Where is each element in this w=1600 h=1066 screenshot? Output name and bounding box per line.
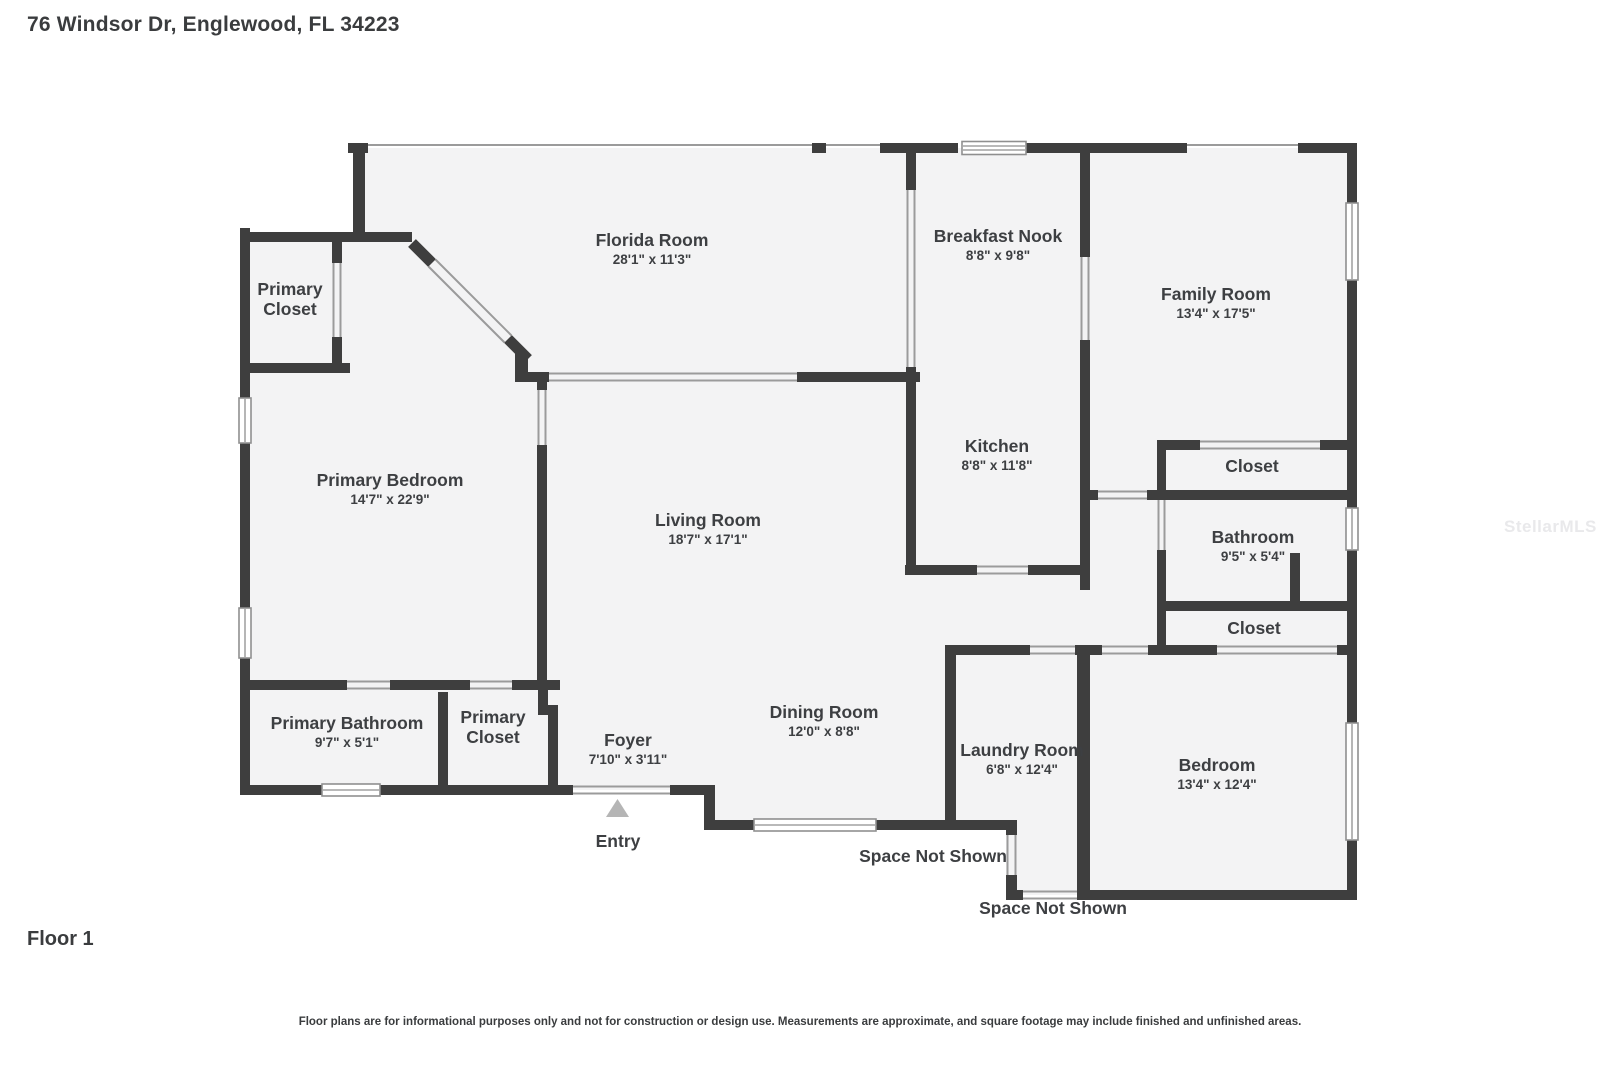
window bbox=[962, 142, 1026, 155]
room-label-living-room: Living Room bbox=[655, 510, 761, 530]
room-label-laundry-room: Laundry Room bbox=[960, 740, 1083, 760]
room-dims-family-room: 13'4" x 17'5" bbox=[1176, 306, 1255, 321]
room-label-breakfast-nook: Breakfast Nook bbox=[934, 226, 1063, 246]
room-dims-living-room: 18'7" x 17'1" bbox=[668, 532, 747, 547]
entry-label: Entry bbox=[596, 831, 641, 851]
floor-plan: Florida Room 28'1" x 11'3" Breakfast Noo… bbox=[0, 0, 1600, 1066]
window bbox=[1346, 723, 1358, 840]
window bbox=[1346, 508, 1358, 550]
room-label-florida-room: Florida Room bbox=[596, 230, 709, 250]
room-dims-dining-room: 12'0" x 8'8" bbox=[788, 724, 860, 739]
room-dims-bedroom: 13'4" x 12'4" bbox=[1177, 777, 1256, 792]
space-not-shown-lower-label: Space Not Shown bbox=[979, 898, 1127, 918]
room-label-family-room: Family Room bbox=[1161, 284, 1271, 304]
room-label-dining-room: Dining Room bbox=[770, 702, 879, 722]
room-label-primary-closet-upper-line2: Closet bbox=[263, 299, 317, 319]
room-dims-bathroom: 9'5" x 5'4" bbox=[1221, 549, 1285, 564]
room-label-bedroom: Bedroom bbox=[1179, 755, 1256, 775]
room-label-primary-closet-lower-line1: Primary bbox=[460, 707, 525, 727]
window bbox=[322, 784, 380, 796]
entry-triangle-icon bbox=[606, 799, 629, 817]
window bbox=[1346, 203, 1358, 280]
room-label-primary-closet-upper-line1: Primary bbox=[257, 279, 322, 299]
watermark: StellarMLS bbox=[1504, 517, 1597, 537]
room-label-closet-upper: Closet bbox=[1225, 456, 1279, 476]
room-label-closet-lower: Closet bbox=[1227, 618, 1281, 638]
room-dims-primary-bathroom: 9'7" x 5'1" bbox=[315, 735, 379, 750]
room-label-primary-bedroom: Primary Bedroom bbox=[317, 470, 464, 490]
floor-label: Floor 1 bbox=[27, 928, 94, 951]
room-label-primary-closet-lower-line2: Closet bbox=[466, 727, 520, 747]
room-dims-breakfast-nook: 8'8" x 9'8" bbox=[966, 248, 1030, 263]
room-label-foyer: Foyer bbox=[604, 730, 652, 750]
window bbox=[239, 398, 251, 443]
window bbox=[754, 819, 876, 831]
space-not-shown-upper-label: Space Not Shown bbox=[859, 846, 1007, 866]
footer-disclaimer: Floor plans are for informational purpos… bbox=[0, 1016, 1600, 1028]
room-label-kitchen: Kitchen bbox=[965, 436, 1029, 456]
room-label-bathroom: Bathroom bbox=[1212, 527, 1295, 547]
room-dims-florida-room: 28'1" x 11'3" bbox=[613, 252, 692, 267]
window bbox=[239, 608, 251, 658]
room-dims-laundry-room: 6'8" x 12'4" bbox=[986, 762, 1058, 777]
room-dims-foyer: 7'10" x 3'11" bbox=[589, 752, 668, 767]
room-dims-primary-bedroom: 14'7" x 22'9" bbox=[350, 492, 429, 507]
room-label-primary-bathroom: Primary Bathroom bbox=[271, 713, 424, 733]
room-dims-kitchen: 8'8" x 11'8" bbox=[961, 458, 1032, 473]
